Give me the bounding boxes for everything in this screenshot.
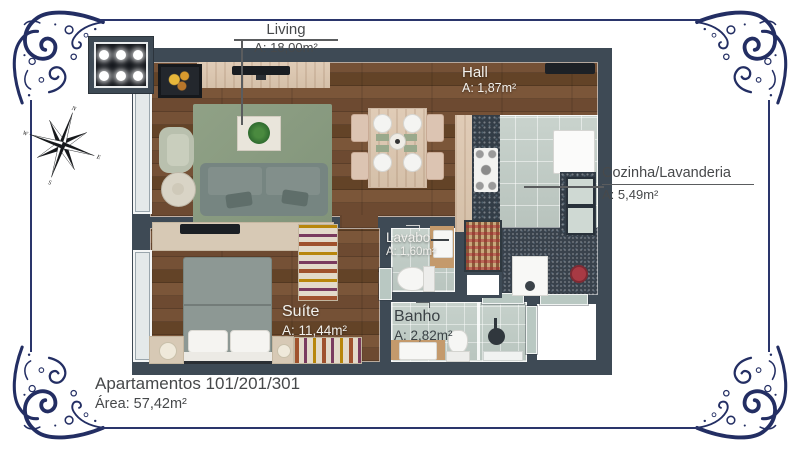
light-spot (116, 50, 126, 60)
sofa-cushion (208, 167, 262, 195)
banho-area: A: 2,82m² (394, 328, 453, 344)
lavabo-toilet-tank (423, 266, 435, 292)
light-spot (99, 71, 109, 81)
cozinha-label: Cozinha/Lavanderia A: 5,49m² (602, 165, 754, 203)
suite-area: A: 11,44m² (282, 323, 347, 339)
armchair (159, 127, 194, 173)
lavabo-toilet-bowl (397, 267, 425, 291)
refrigerator (553, 130, 595, 174)
living-area: A: 18,00m² (234, 41, 338, 56)
living-label: Living A: 18,00m² (234, 21, 338, 56)
pantry-shelf (464, 220, 502, 272)
suite-label: Suíte A: 11,44m² (282, 303, 347, 339)
light-spot (99, 50, 109, 60)
nightstand (149, 336, 184, 364)
side-table-center (172, 183, 184, 195)
lavabo-name: Lavabo (386, 230, 436, 246)
living-window (133, 90, 152, 214)
suite-name: Suíte (282, 303, 347, 321)
suite-closet (294, 337, 362, 364)
frame-line-right (768, 100, 770, 352)
shower-tray (483, 351, 523, 361)
cozinha-area: A: 5,49m² (602, 188, 754, 203)
caption-area: Área: 57,42m² (95, 396, 300, 412)
bed (183, 257, 272, 359)
dining-chair (351, 152, 369, 180)
plant-icon (248, 122, 270, 144)
placemat (404, 145, 417, 152)
compass-west-label: W (22, 130, 30, 138)
cozinha-leader-line (524, 186, 604, 188)
lamp-icon (277, 344, 291, 358)
tv-stand (256, 75, 266, 80)
suite-entry-opening (340, 215, 378, 228)
placemat (376, 145, 389, 152)
floor-plan-page: N E S W (0, 0, 800, 450)
banho-toilet-tank (446, 351, 470, 362)
laundry-basket (570, 265, 588, 283)
banho-label: Banho A: 2,82m² (394, 308, 453, 344)
plate (403, 153, 422, 172)
banho-sink (399, 342, 437, 360)
sofa-pillow (225, 191, 253, 208)
hall-name: Hall (462, 64, 516, 81)
plate (373, 114, 392, 133)
centerpiece-dot (395, 139, 400, 144)
shower-head-icon (488, 328, 505, 345)
lavabo-label: Lavabo A: 1,60m² (386, 230, 436, 259)
duvet-fold (184, 304, 271, 306)
washing-machine (512, 256, 548, 296)
dining-chair (351, 114, 369, 142)
light-spot (133, 71, 143, 81)
kitchen-island-panel (455, 115, 472, 232)
wardrobe (298, 224, 338, 301)
pillow (230, 330, 270, 353)
plate (373, 153, 392, 172)
lavabo-area: A: 1,60m² (386, 246, 436, 259)
compass-south-label: S (47, 180, 52, 187)
corner-flourish-top-right (694, 6, 794, 106)
hall-area: A: 1,87m² (462, 81, 516, 95)
frame-line-bottom (100, 427, 700, 429)
dining-chair (426, 114, 444, 142)
plan-caption: Apartamentos 101/201/301 Área: 57,42m² (95, 374, 300, 412)
corner-flourish-bottom-right (694, 344, 794, 444)
compass-rose: N E S W (20, 96, 104, 194)
headboard (182, 352, 273, 364)
lightbox-panel (94, 42, 148, 88)
lightbox (88, 36, 154, 94)
suite-bath-door (379, 268, 392, 300)
coffee-table (237, 116, 281, 151)
side-table (161, 172, 196, 207)
entry-landing (537, 304, 596, 360)
caption-title: Apartamentos 101/201/301 (95, 374, 300, 394)
plate (403, 114, 422, 133)
suite-tv-icon (180, 224, 240, 234)
hall-console (545, 63, 595, 74)
entry-door (526, 306, 537, 354)
sink-basin (566, 206, 595, 235)
cozinha-name: Cozinha/Lavanderia (602, 165, 754, 185)
hall-label: Hall A: 1,87m² (462, 64, 516, 96)
lavabo-sink (433, 230, 453, 258)
lamp-icon (159, 342, 177, 360)
banho-name: Banho (394, 308, 453, 326)
cooktop (474, 148, 498, 192)
washer-door (525, 281, 535, 291)
sofa (200, 163, 328, 216)
frame-line-top (100, 19, 700, 21)
living-name: Living (234, 21, 338, 38)
placemat (376, 134, 389, 141)
sink-basin (566, 177, 595, 206)
shaft (464, 272, 502, 298)
dining-chair (426, 152, 444, 180)
sofa-pillow (281, 189, 309, 206)
shower-glass (477, 302, 480, 360)
compass-north-label: N (70, 105, 78, 113)
corner-flourish-bottom-left (6, 344, 106, 444)
armchair-seat (167, 134, 189, 166)
compass-east-label: E (95, 154, 102, 161)
light-spot (133, 50, 143, 60)
table-centerpiece (389, 133, 406, 150)
pillow (188, 330, 228, 353)
nightstand (272, 336, 294, 364)
wall-art (158, 64, 202, 98)
light-spot (116, 71, 126, 81)
